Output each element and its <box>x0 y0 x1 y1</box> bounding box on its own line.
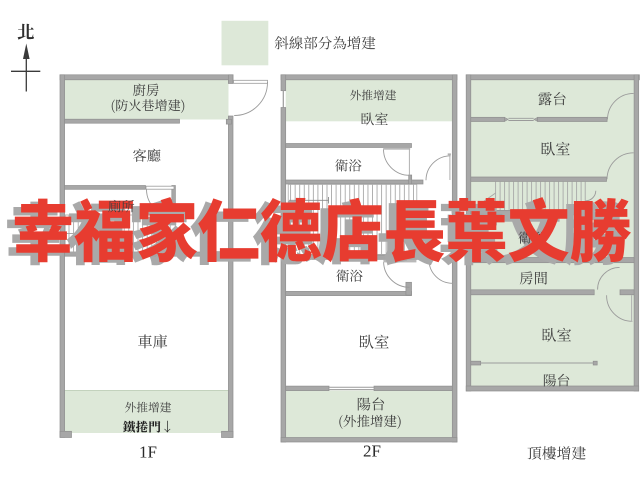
svg-text:1F: 1F <box>139 443 157 462</box>
svg-text:2F: 2F <box>363 442 381 461</box>
